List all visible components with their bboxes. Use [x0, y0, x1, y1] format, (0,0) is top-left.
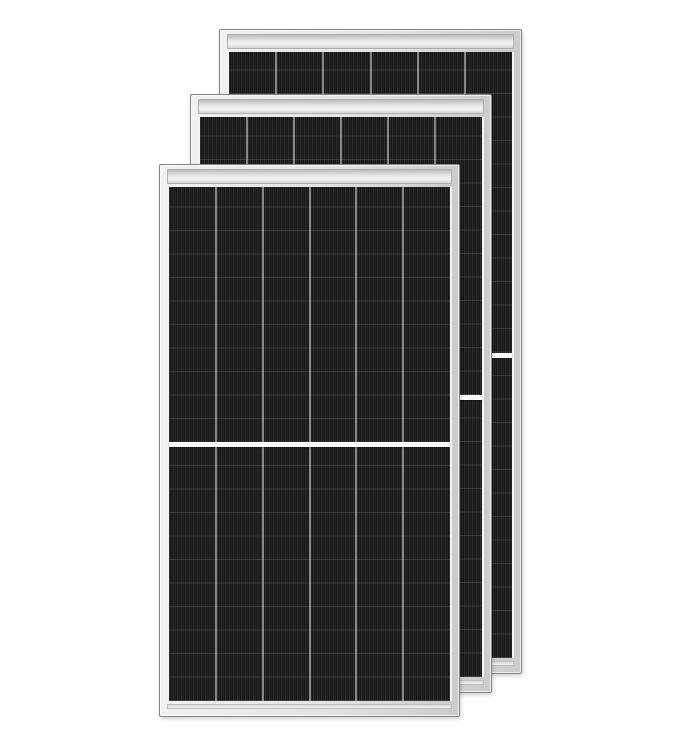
- product-image-stage: [0, 0, 684, 748]
- panel-cell-area: [167, 187, 452, 701]
- panel-top-rail: [227, 34, 514, 49]
- panel-top-rail: [167, 169, 452, 184]
- panel-top-rail: [198, 99, 484, 114]
- panel-bottom-rail: [167, 704, 452, 709]
- solar-panel-front: [159, 164, 460, 717]
- half-cell-divider: [169, 442, 450, 447]
